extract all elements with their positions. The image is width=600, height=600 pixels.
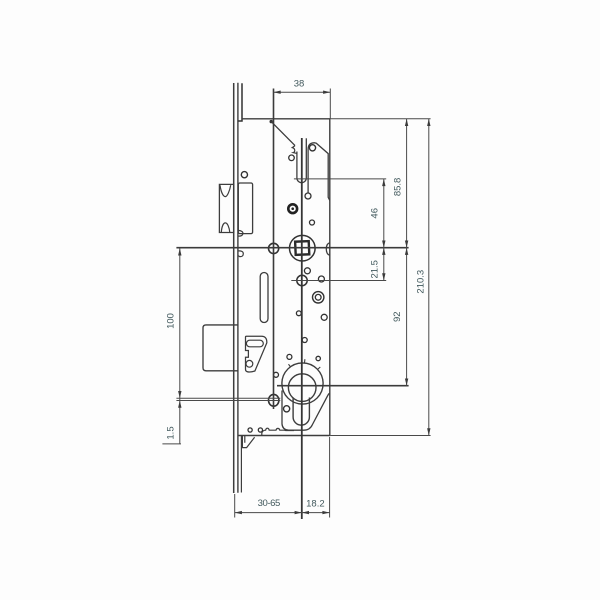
svg-text:18.2: 18.2 — [306, 499, 325, 510]
svg-text:100: 100 — [165, 313, 176, 329]
svg-text:30-65: 30-65 — [258, 498, 280, 509]
svg-text:85.8: 85.8 — [393, 178, 404, 197]
svg-text:210.3: 210.3 — [415, 270, 426, 294]
svg-text:21.5: 21.5 — [370, 260, 381, 279]
svg-text:92: 92 — [392, 311, 403, 322]
svg-text:38: 38 — [294, 79, 305, 90]
svg-text:1.5: 1.5 — [165, 426, 176, 439]
svg-text:46: 46 — [370, 208, 381, 219]
